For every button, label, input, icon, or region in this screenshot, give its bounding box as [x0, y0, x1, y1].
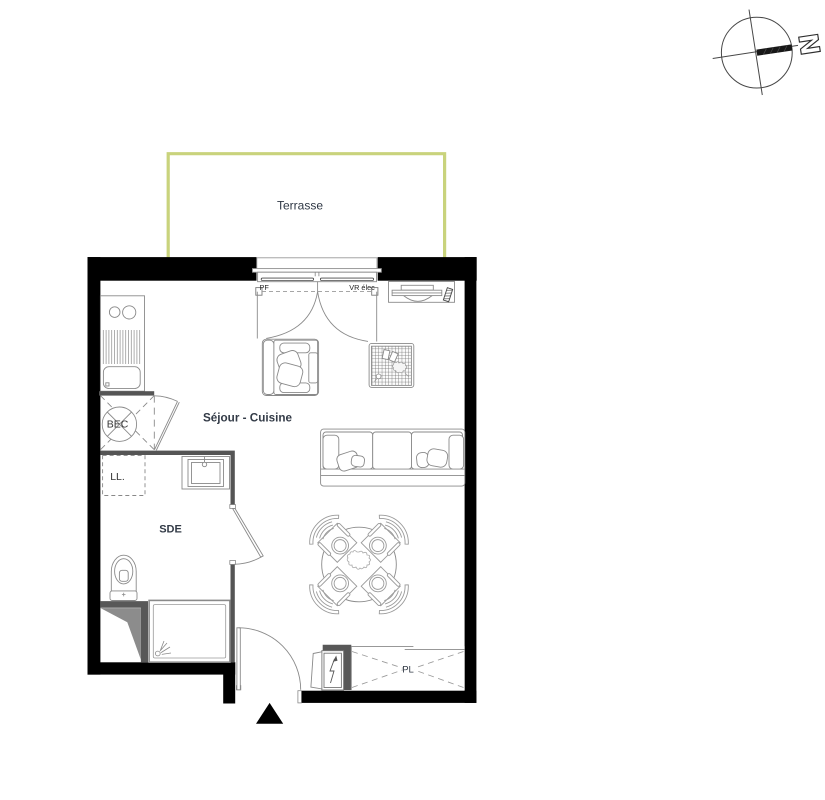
svg-text:BEC: BEC — [107, 419, 129, 431]
svg-text:PL: PL — [402, 665, 414, 676]
svg-text:Terrasse: Terrasse — [277, 199, 323, 213]
svg-text:PF: PF — [260, 283, 270, 292]
svg-text:VR élec: VR élec — [349, 283, 375, 292]
svg-text:Séjour - Cuisine: Séjour - Cuisine — [203, 412, 292, 425]
svg-text:SDE: SDE — [159, 524, 182, 536]
svg-text:LL.: LL. — [110, 471, 125, 483]
